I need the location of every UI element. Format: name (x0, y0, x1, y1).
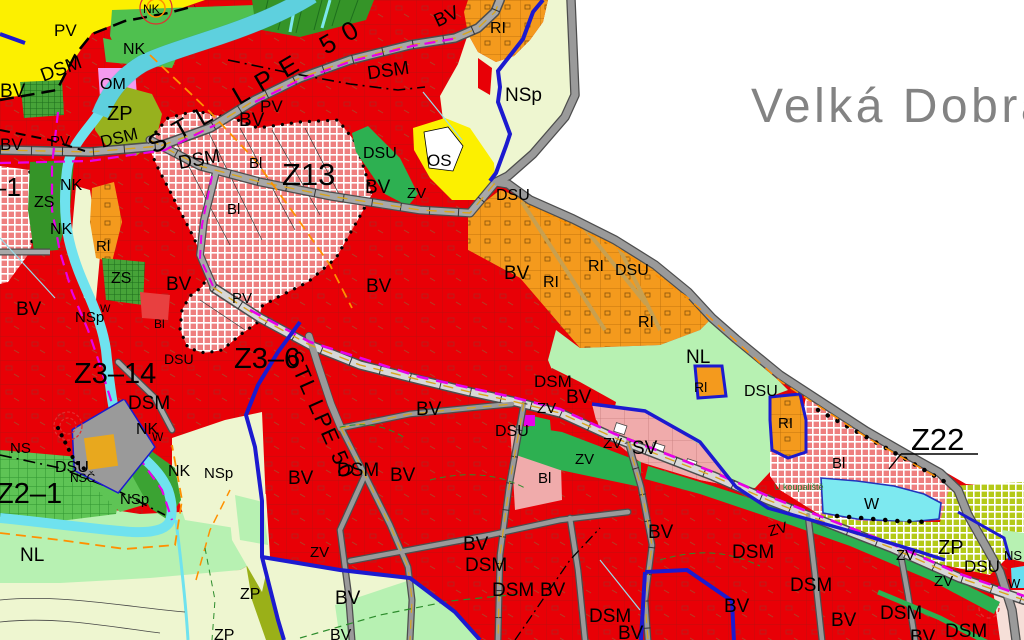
svg-text:ZP: ZP (938, 537, 964, 559)
svg-text:Z2–1: Z2–1 (0, 478, 62, 510)
svg-text:BV: BV (831, 610, 857, 631)
svg-text:NK: NK (50, 221, 73, 238)
svg-text:ZV: ZV (310, 544, 329, 561)
svg-text:BV: BV (16, 299, 42, 320)
svg-text:BV: BV (618, 623, 644, 640)
svg-text:DSM: DSM (465, 555, 507, 576)
svg-text:Bl: Bl (154, 317, 165, 331)
svg-text:NK: NK (60, 177, 83, 194)
svg-text:PV: PV (260, 97, 283, 116)
svg-text:NK: NK (168, 463, 191, 480)
svg-text:RI: RI (543, 274, 559, 291)
svg-text:RI: RI (778, 415, 793, 432)
svg-text:Velká Dobrá: Velká Dobrá (751, 80, 1024, 133)
svg-text:BV: BV (365, 177, 391, 198)
svg-text:ZP: ZP (107, 103, 133, 125)
svg-text:BV: BV (0, 135, 23, 154)
svg-text:NSp: NSp (505, 85, 542, 106)
svg-text:–1: –1 (0, 172, 21, 202)
svg-text:BV: BV (724, 596, 750, 617)
svg-text:DSU: DSU (363, 145, 397, 162)
svg-text:BV: BV (910, 627, 936, 640)
svg-text:DSU: DSU (495, 423, 529, 440)
svg-text:DSM: DSM (337, 460, 379, 481)
svg-text:Rl: Rl (96, 238, 110, 255)
svg-text:NS: NS (1004, 548, 1022, 563)
svg-text:NSČ: NSČ (70, 470, 96, 485)
svg-text:DSU: DSU (615, 262, 649, 279)
svg-text:RI: RI (490, 20, 506, 37)
svg-text:ZP: ZP (214, 627, 234, 640)
svg-text:RI: RI (638, 314, 654, 331)
svg-text:DSM: DSM (128, 393, 170, 414)
svg-text:BV: BV (335, 588, 361, 609)
svg-text:NL: NL (20, 545, 44, 566)
svg-text:DSU: DSU (496, 187, 530, 204)
svg-text:W: W (1008, 576, 1021, 591)
svg-text:BV: BV (288, 468, 314, 489)
svg-text:NL: NL (686, 347, 710, 368)
svg-text:Bl: Bl (227, 201, 240, 218)
svg-text:ZV: ZV (896, 547, 915, 564)
svg-text:W: W (152, 430, 164, 444)
svg-text:DSU: DSU (964, 557, 1000, 576)
svg-text:BV: BV (504, 263, 530, 284)
svg-text:BV: BV (330, 627, 352, 640)
svg-text:ZV: ZV (407, 185, 426, 202)
svg-text:BV: BV (390, 465, 416, 486)
svg-text:Bl: Bl (249, 155, 262, 172)
svg-text:DSM: DSM (945, 621, 987, 640)
svg-text:Bl: Bl (538, 470, 551, 487)
svg-text:BV: BV (566, 387, 592, 408)
svg-text:Z22: Z22 (911, 422, 964, 457)
svg-text:Rl: Rl (694, 379, 707, 395)
svg-text:DSM: DSM (732, 542, 774, 563)
svg-text:ZV: ZV (537, 400, 556, 417)
svg-text:NSp: NSp (120, 491, 149, 508)
svg-text:ZS: ZS (111, 270, 131, 287)
svg-text:DSU: DSU (744, 383, 778, 400)
svg-text:W: W (100, 303, 111, 315)
svg-text:BV: BV (648, 522, 674, 543)
svg-text:Z3–14: Z3–14 (74, 358, 156, 390)
svg-text:BV: BV (166, 274, 192, 295)
svg-text:ZV: ZV (603, 435, 622, 452)
svg-text:BV: BV (540, 580, 566, 601)
svg-text:BV: BV (366, 276, 392, 297)
svg-text:ZP: ZP (240, 586, 260, 603)
svg-text:OM: OM (100, 76, 126, 93)
svg-text:NSp: NSp (204, 465, 233, 482)
svg-text:ZV: ZV (934, 573, 953, 590)
svg-text:PV: PV (54, 21, 77, 40)
svg-text:OS: OS (427, 151, 452, 170)
svg-text:NK: NK (143, 2, 160, 16)
svg-text:BV: BV (416, 399, 442, 420)
svg-text:U koupaliště: U koupaliště (774, 482, 824, 492)
svg-text:BV: BV (463, 534, 489, 555)
svg-text:Bl: Bl (832, 455, 845, 472)
svg-text:W: W (864, 496, 880, 513)
svg-text:NS: NS (10, 440, 31, 457)
svg-text:NK: NK (123, 41, 146, 58)
svg-text:BV: BV (0, 81, 26, 102)
svg-text:SV: SV (632, 438, 658, 459)
svg-text:DSM: DSM (880, 603, 922, 624)
svg-text:DSM: DSM (790, 575, 832, 596)
svg-text:DSU: DSU (164, 351, 194, 367)
svg-text:ZS: ZS (34, 194, 54, 211)
svg-text:PV: PV (50, 133, 70, 150)
svg-text:Z13: Z13 (282, 157, 335, 192)
svg-text:ZV: ZV (575, 451, 594, 468)
svg-text:PV: PV (232, 290, 252, 307)
svg-text:RI: RI (588, 258, 604, 275)
svg-text:DSM: DSM (492, 580, 534, 601)
